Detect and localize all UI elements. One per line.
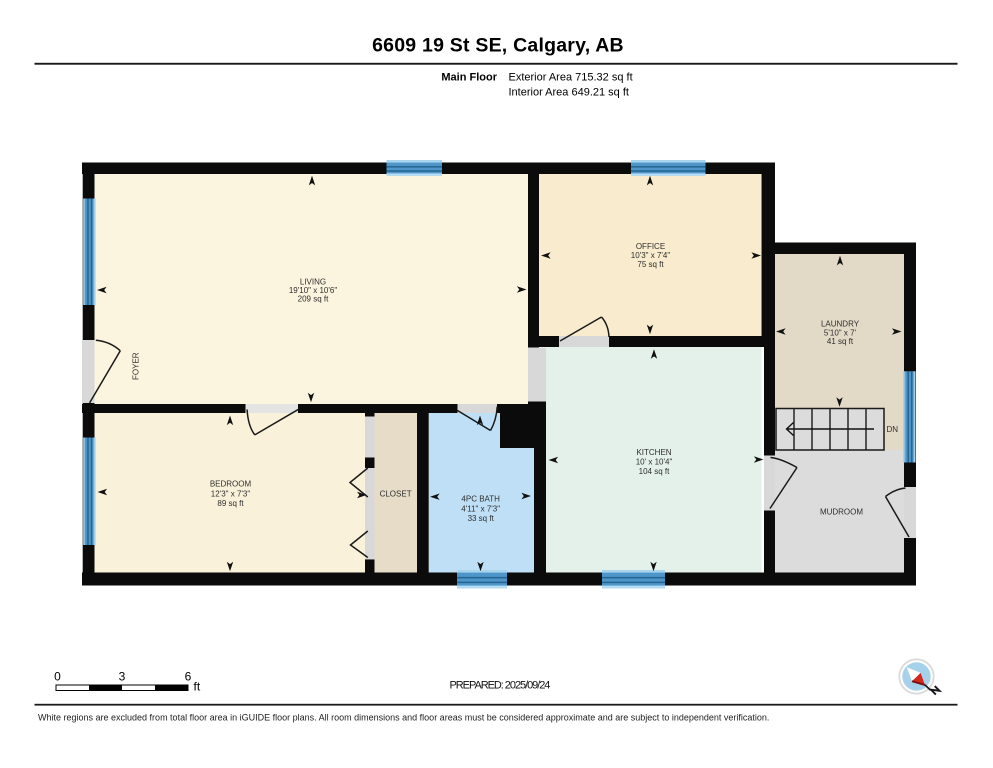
svg-text:PREPARED: 2025/09/24: PREPARED: 2025/09/24 xyxy=(450,680,551,692)
svg-text:3: 3 xyxy=(119,670,126,684)
svg-text:0: 0 xyxy=(54,670,61,684)
svg-text:209 sq ft: 209 sq ft xyxy=(298,295,329,304)
svg-text:41 sq ft: 41 sq ft xyxy=(827,337,854,346)
svg-text:FOYER: FOYER xyxy=(132,352,141,380)
svg-text:5'10" x 7': 5'10" x 7' xyxy=(824,328,857,337)
svg-text:DN: DN xyxy=(887,425,899,434)
svg-text:Exterior Area 715.32 sq ft: Exterior Area 715.32 sq ft xyxy=(509,72,633,84)
svg-text:CLOSET: CLOSET xyxy=(380,490,412,499)
svg-text:10' x 10'4": 10' x 10'4" xyxy=(636,458,673,467)
svg-text:104 sq ft: 104 sq ft xyxy=(639,467,670,476)
svg-text:KITCHEN: KITCHEN xyxy=(636,448,671,457)
svg-text:ft: ft xyxy=(194,680,201,694)
svg-text:OFFICE: OFFICE xyxy=(636,242,665,251)
svg-text:Main Floor: Main Floor xyxy=(441,72,497,84)
svg-text:LAUNDRY: LAUNDRY xyxy=(821,319,860,328)
svg-text:6: 6 xyxy=(185,670,192,684)
svg-text:10'3" x 7'4": 10'3" x 7'4" xyxy=(631,251,671,260)
svg-text:4'11" x 7'3": 4'11" x 7'3" xyxy=(461,504,500,513)
svg-text:6609 19 St SE, Calgary, AB: 6609 19 St SE, Calgary, AB xyxy=(372,35,624,57)
svg-text:BEDROOM: BEDROOM xyxy=(210,480,252,489)
svg-text:MUDROOM: MUDROOM xyxy=(820,507,863,516)
svg-text:Interior Area 649.21 sq ft: Interior Area 649.21 sq ft xyxy=(509,87,629,99)
svg-text:4PC BATH: 4PC BATH xyxy=(461,494,500,503)
svg-text:89 sq ft: 89 sq ft xyxy=(217,499,244,508)
svg-text:33 sq ft: 33 sq ft xyxy=(468,514,495,523)
svg-text:75 sq ft: 75 sq ft xyxy=(637,260,664,269)
svg-text:12'3" x 7'3": 12'3" x 7'3" xyxy=(211,490,251,499)
svg-text:White regions are excluded fro: White regions are excluded from total fl… xyxy=(38,713,769,723)
